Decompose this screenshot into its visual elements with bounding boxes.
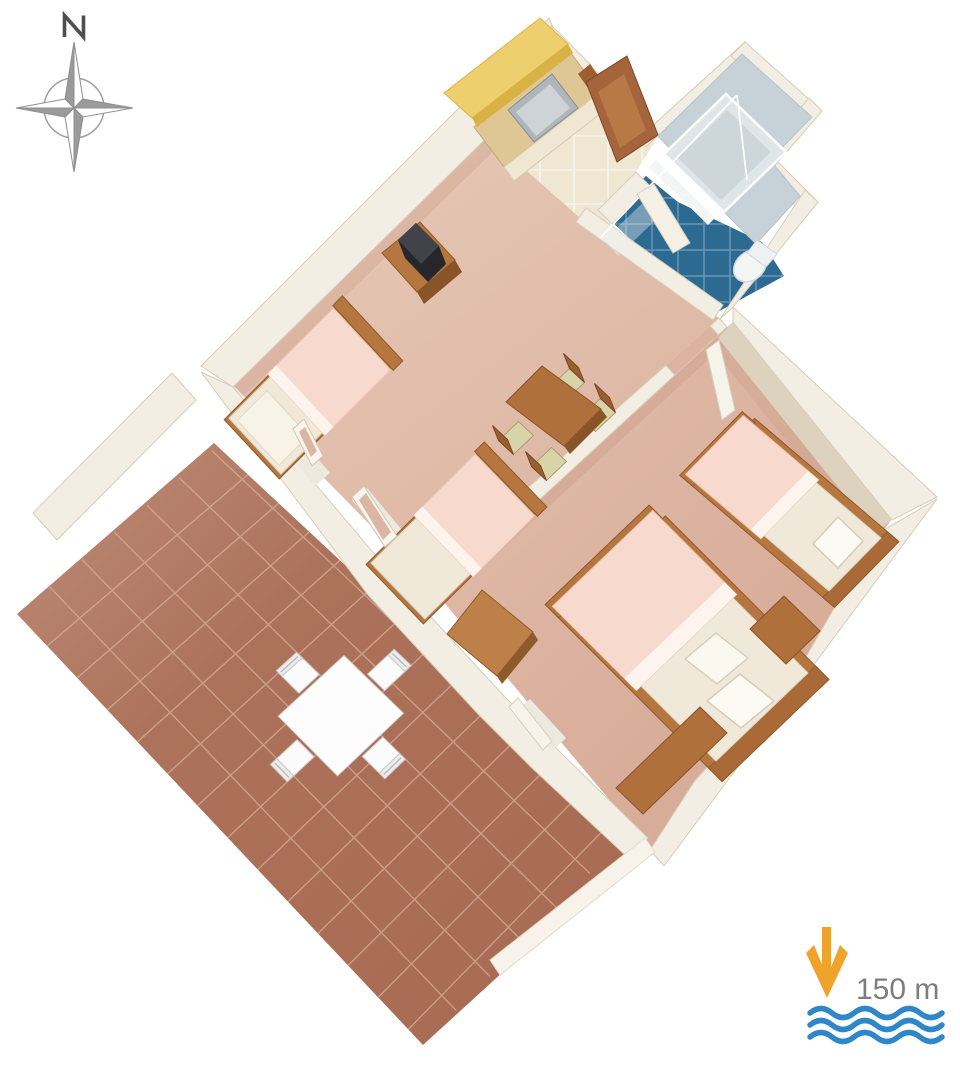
- svg-text:150 m: 150 m: [856, 973, 939, 1006]
